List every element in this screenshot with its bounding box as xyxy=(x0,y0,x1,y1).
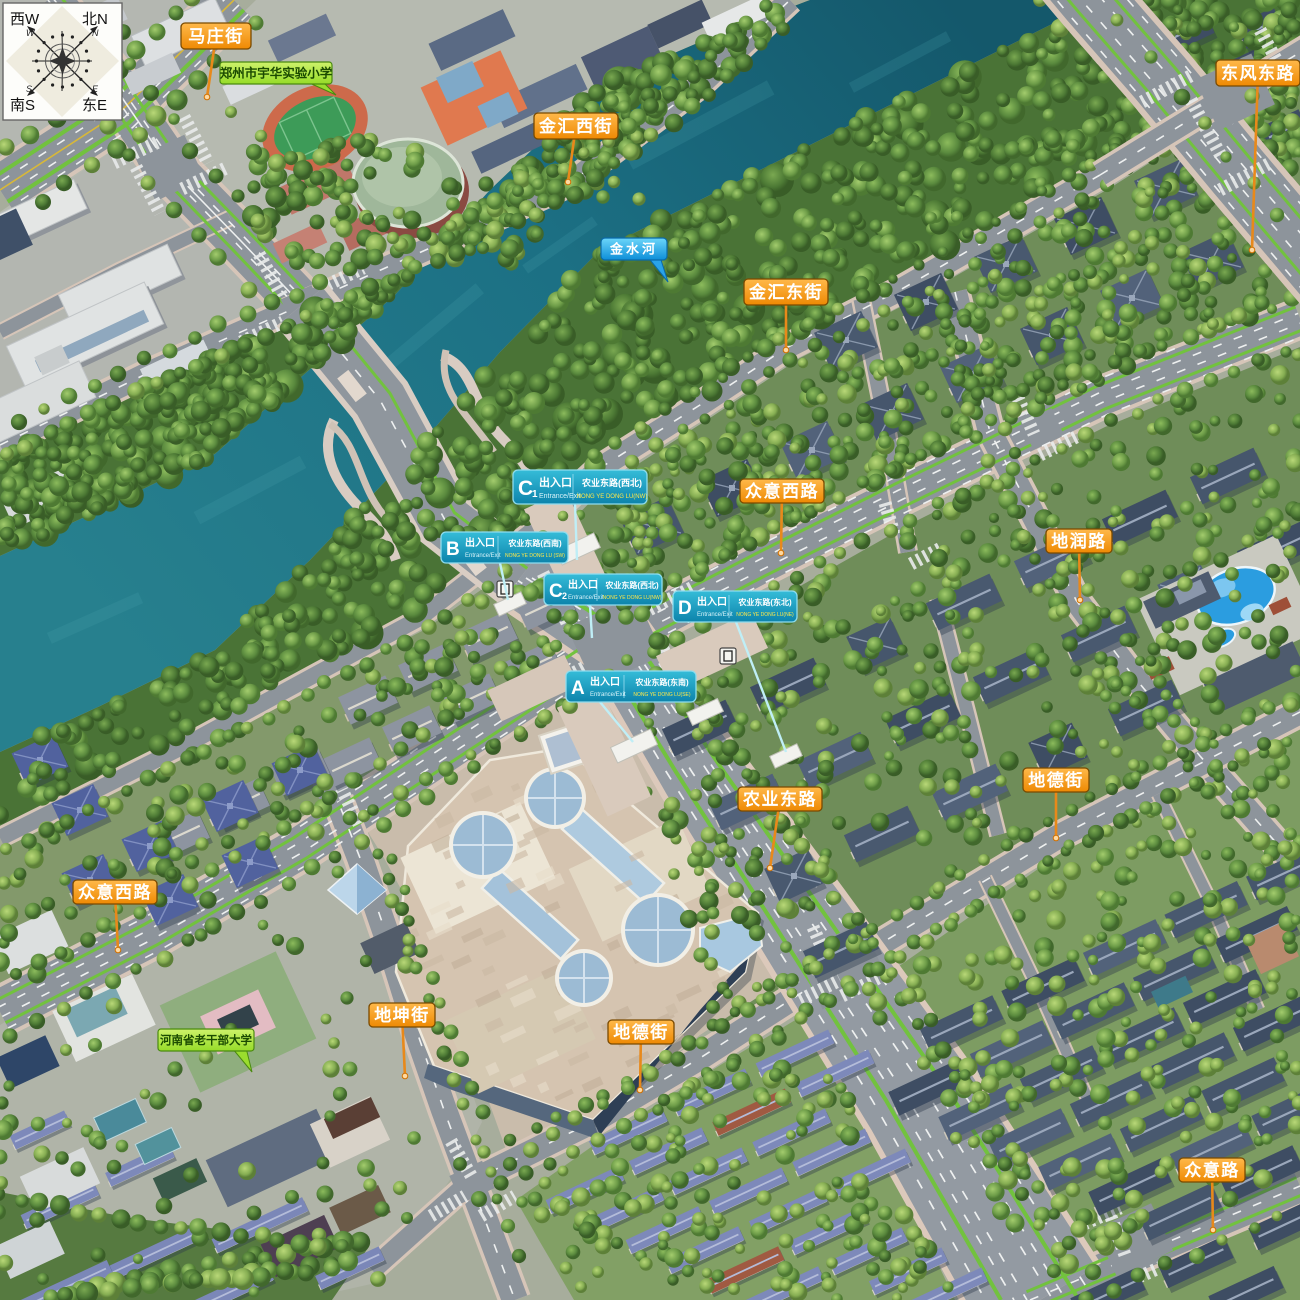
svg-text:NONG YE DONG LU(NE): NONG YE DONG LU(NE) xyxy=(736,612,794,618)
svg-text:农业东路(西南): 农业东路(西南) xyxy=(507,538,562,548)
svg-text:郑州市宇华实验小学: 郑州市宇华实验小学 xyxy=(220,66,333,81)
svg-text:出入口: 出入口 xyxy=(568,578,598,591)
svg-text:NONG YE DONG LU (SW): NONG YE DONG LU (SW) xyxy=(505,553,565,559)
svg-text:东风东路: 东风东路 xyxy=(1221,63,1295,83)
svg-text:S: S xyxy=(26,84,32,94)
svg-text:出入口: 出入口 xyxy=(465,536,495,549)
svg-text:出入口: 出入口 xyxy=(539,475,572,489)
svg-text:金水河: 金水河 xyxy=(609,242,658,257)
svg-text:D: D xyxy=(678,598,692,619)
svg-text:Entrance/Exit: Entrance/Exit xyxy=(539,493,581,500)
svg-text:地坤街: 地坤街 xyxy=(374,1005,430,1025)
svg-text:众意路: 众意路 xyxy=(1184,1160,1240,1180)
svg-text:Entrance/Exit: Entrance/Exit xyxy=(465,553,501,559)
svg-text:B: B xyxy=(446,539,460,560)
svg-text:众意西路: 众意西路 xyxy=(78,882,152,902)
svg-text:南S: 南S xyxy=(10,97,35,114)
svg-text:C: C xyxy=(549,581,563,602)
svg-text:2: 2 xyxy=(562,591,567,601)
svg-text:农业东路(东北): 农业东路(东北) xyxy=(737,597,792,607)
svg-text:农业东路: 农业东路 xyxy=(742,789,817,809)
svg-text:NONG YE DONG LU(NW): NONG YE DONG LU(NW) xyxy=(577,494,648,500)
svg-text:东E: 东E xyxy=(82,97,107,114)
svg-text:地德街: 地德街 xyxy=(1028,770,1084,790)
svg-text:Entrance/Exit: Entrance/Exit xyxy=(568,595,604,601)
svg-text:农业东路(西北): 农业东路(西北) xyxy=(581,477,642,488)
svg-text:出入口: 出入口 xyxy=(590,675,620,688)
svg-text:北N: 北N xyxy=(82,11,108,28)
svg-text:马庄街: 马庄街 xyxy=(188,26,244,46)
svg-text:地德街: 地德街 xyxy=(613,1022,669,1042)
svg-text:A: A xyxy=(571,678,585,699)
svg-text:农业东路(西北): 农业东路(西北) xyxy=(604,580,659,590)
svg-text:E: E xyxy=(92,84,99,94)
svg-text:Entrance/Exit: Entrance/Exit xyxy=(590,692,626,698)
svg-text:C: C xyxy=(518,477,533,500)
svg-text:西W: 西W xyxy=(10,11,40,28)
svg-text:河南省老干部大学: 河南省老干部大学 xyxy=(160,1033,252,1047)
svg-text:NONG YE DONG LU(NW): NONG YE DONG LU(NW) xyxy=(603,595,662,601)
svg-text:众意西路: 众意西路 xyxy=(745,481,819,501)
svg-text:地润路: 地润路 xyxy=(1051,531,1107,551)
svg-text:出入口: 出入口 xyxy=(697,595,727,608)
svg-text:金汇西街: 金汇西街 xyxy=(538,116,613,136)
svg-text:农业东路(东南): 农业东路(东南) xyxy=(634,677,689,687)
svg-text:N: N xyxy=(92,28,99,38)
svg-text:NONG YE DONG LU(SE): NONG YE DONG LU(SE) xyxy=(633,692,690,698)
svg-text:Entrance/Exit: Entrance/Exit xyxy=(697,612,733,618)
svg-text:1: 1 xyxy=(532,489,538,500)
svg-text:金汇东街: 金汇东街 xyxy=(748,282,823,302)
